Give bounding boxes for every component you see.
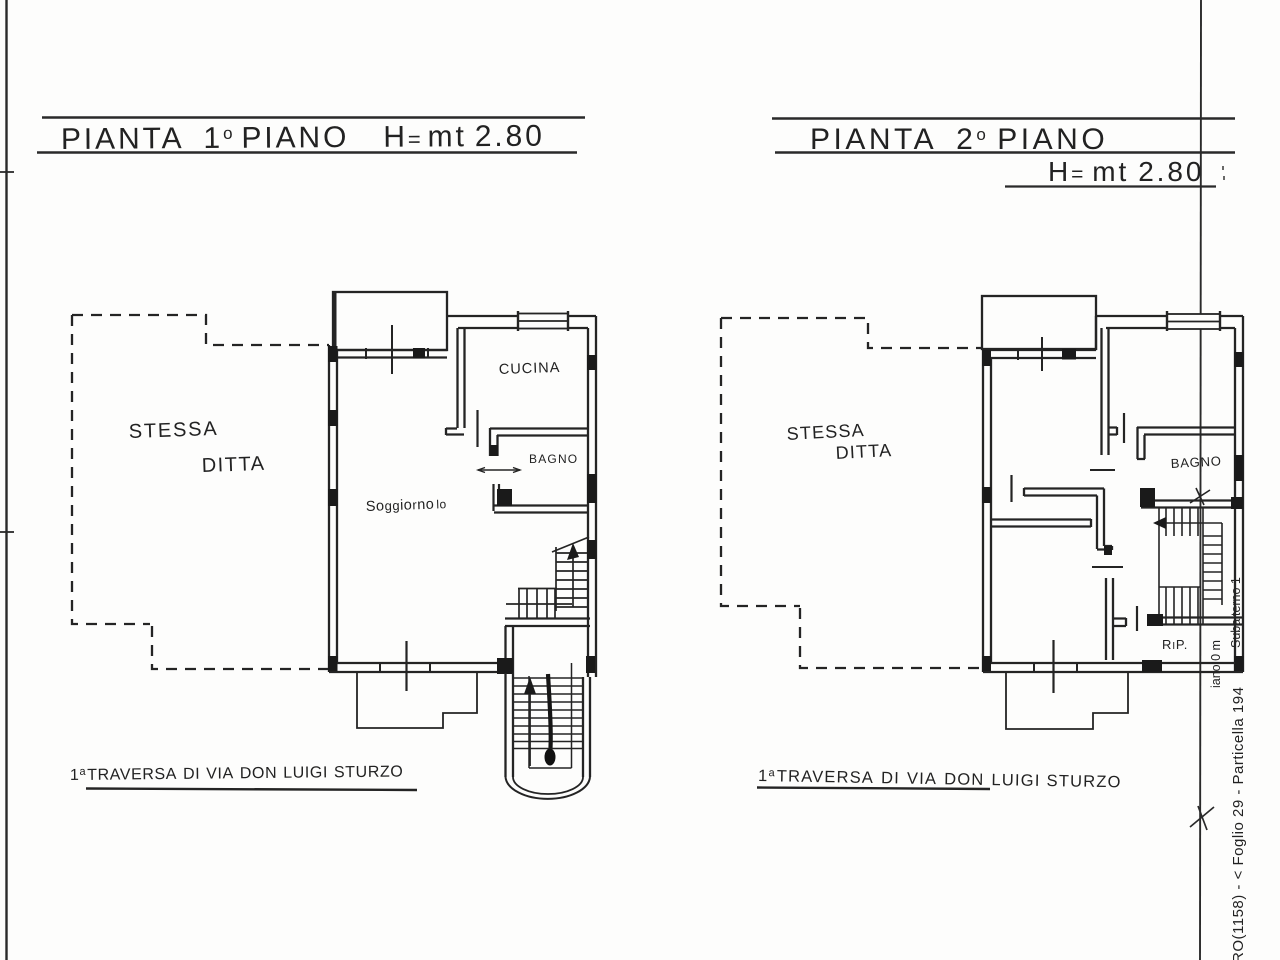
svg-text:RIP.: RIP.	[1162, 637, 1188, 652]
svg-text:PIANTA2oPIANO: PIANTA2oPIANO	[810, 123, 1108, 156]
svg-text:RO(1158) - < Foglio 29 - Part: RO(1158) - < Foglio 29 - Particella 194	[1230, 687, 1247, 960]
svg-text:STESSA: STESSA	[786, 420, 865, 444]
svg-text:STESSA: STESSA	[128, 418, 218, 443]
svg-text:CUCINA: CUCINA	[499, 360, 561, 378]
svg-text:BAGNO: BAGNO	[529, 452, 578, 466]
svg-text:Subalterno 1: Subalterno 1	[1229, 577, 1243, 648]
svg-text:DITTA: DITTA	[201, 453, 266, 477]
svg-text:iano 0 m: iano 0 m	[1209, 640, 1223, 688]
svg-text:BAGNO: BAGNO	[1170, 453, 1222, 471]
svg-text:DITTA: DITTA	[835, 440, 893, 463]
